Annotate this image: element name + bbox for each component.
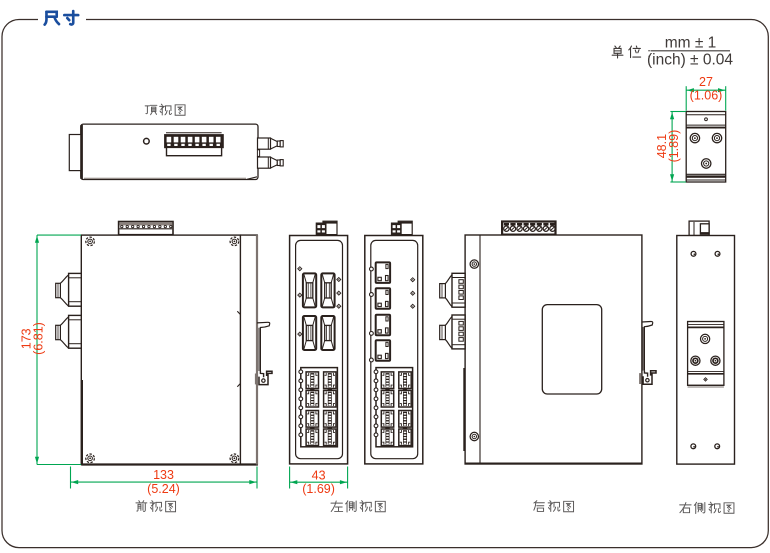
svg-text:27: 27	[699, 75, 713, 89]
svg-text:(1.06): (1.06)	[690, 89, 723, 103]
svg-text:133: 133	[153, 468, 174, 482]
svg-text:(1.89): (1.89)	[667, 130, 681, 163]
svg-text:(6.81): (6.81)	[32, 322, 46, 355]
svg-text:mm ± 1: mm ± 1	[665, 35, 717, 52]
svg-text:(5.24): (5.24)	[147, 482, 180, 496]
svg-text:(1.69): (1.69)	[302, 482, 335, 496]
svg-text:(inch) ± 0.04: (inch) ± 0.04	[647, 52, 733, 69]
svg-text:43: 43	[312, 468, 326, 482]
